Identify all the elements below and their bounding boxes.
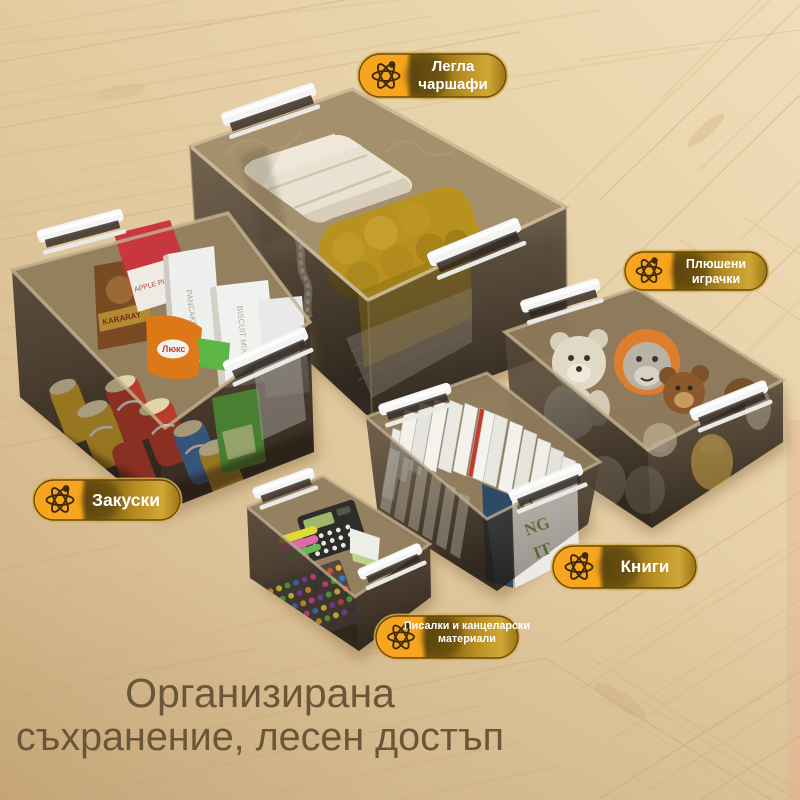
svg-text:Плюшени: Плюшени <box>686 257 746 271</box>
svg-text:Люкс: Люкс <box>162 344 185 354</box>
svg-text:Закуски: Закуски <box>92 490 160 510</box>
svg-text:материали: материали <box>438 633 496 645</box>
svg-text:Книги: Книги <box>621 557 670 576</box>
svg-text:Организирана: Организирана <box>125 670 395 716</box>
svg-text:играчки: играчки <box>692 272 740 286</box>
svg-text:Легла: Легла <box>432 58 475 75</box>
svg-text:чаршафи: чаршафи <box>418 76 487 93</box>
svg-text:Писалки и канцеларски: Писалки и канцеларски <box>404 620 530 632</box>
svg-text:съхранение, лесен достъп: съхранение, лесен достъп <box>16 715 504 759</box>
